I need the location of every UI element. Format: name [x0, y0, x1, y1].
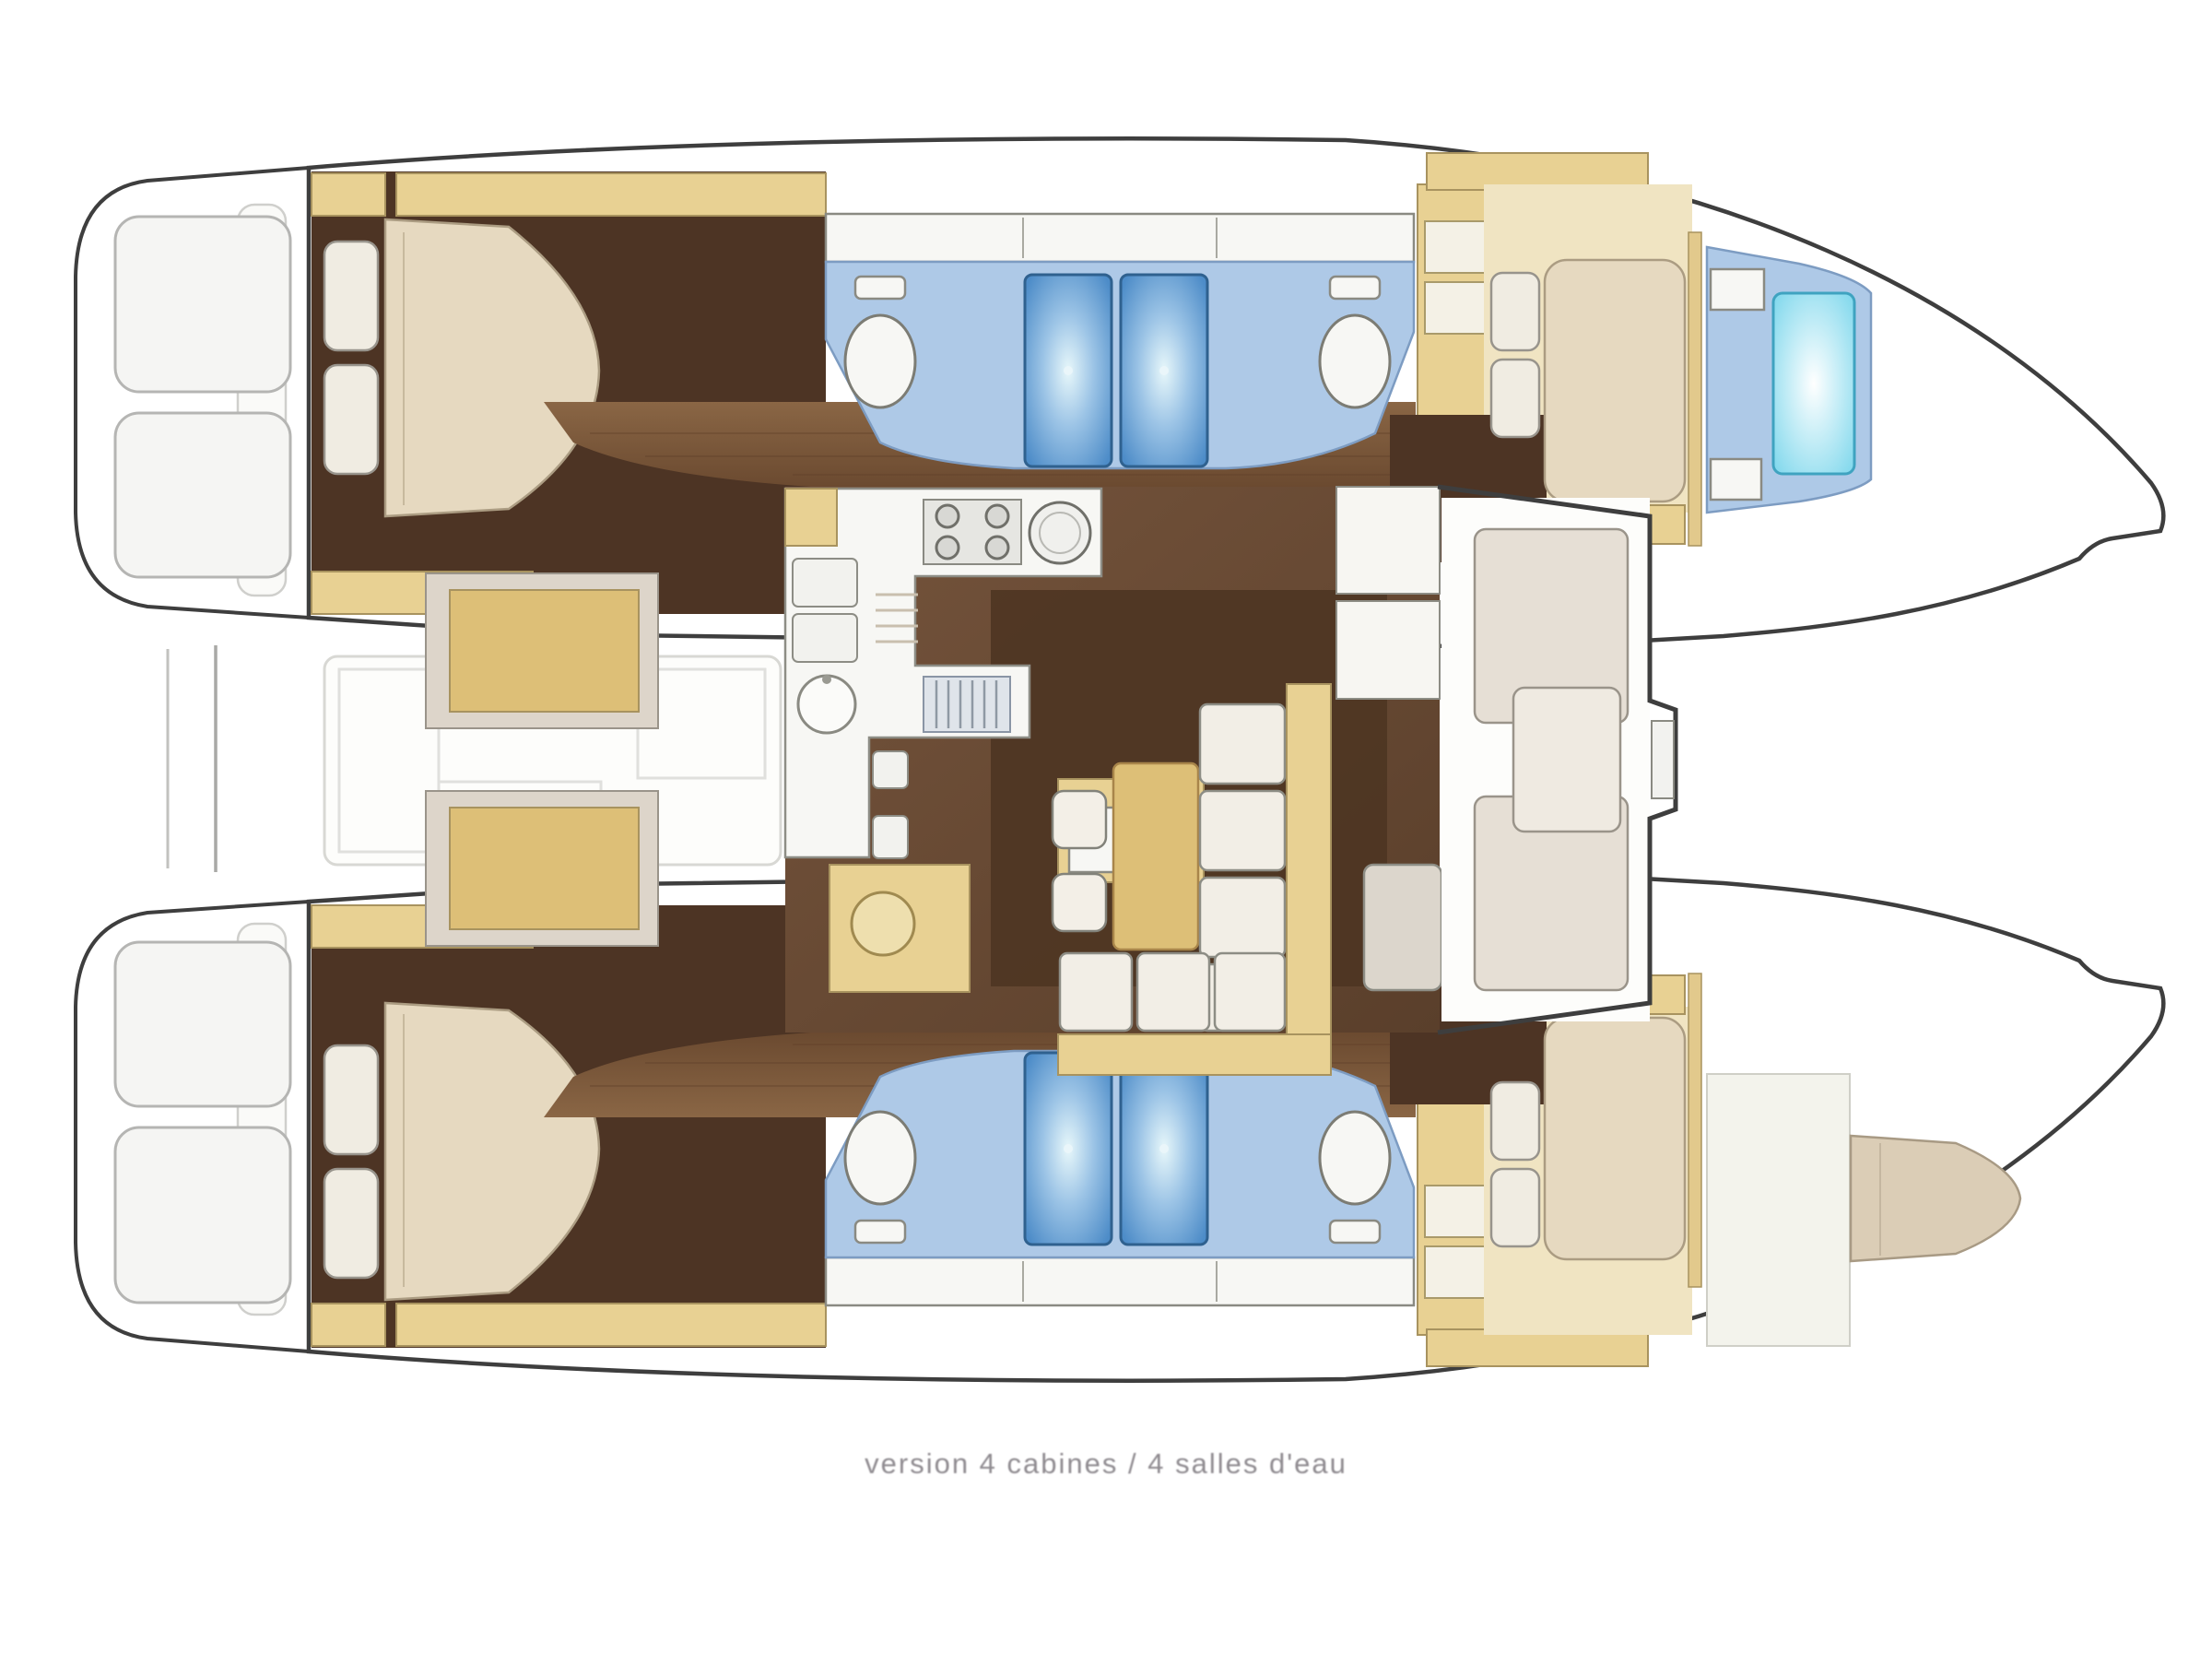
bow-berth-floor — [1707, 1074, 1850, 1346]
toilet — [1320, 277, 1390, 407]
galley-round-burner — [1030, 502, 1090, 563]
salon-cabinet — [1336, 487, 1440, 594]
sofa-backrest — [1058, 1034, 1331, 1075]
bow-bulkhead — [1688, 232, 1701, 546]
salon-chair — [1053, 874, 1106, 931]
forward-cabin-bed — [1545, 260, 1685, 502]
bed-pillow — [324, 365, 378, 474]
shower-drain — [1064, 366, 1073, 375]
bed-pillow — [1491, 360, 1539, 437]
aft-cabin-cabinet — [396, 173, 826, 216]
oven-dial — [852, 892, 914, 955]
bridgedeck — [785, 487, 1676, 1075]
sofa-backrest — [1287, 684, 1331, 1038]
bed-pillow — [1491, 273, 1539, 350]
foredeck-step — [1652, 721, 1674, 798]
galley-sink-round — [798, 676, 855, 733]
bow-sink — [1711, 269, 1764, 310]
nav-seat — [1364, 865, 1441, 990]
galley-drawer — [793, 559, 857, 607]
galley-stool — [873, 816, 908, 858]
galley-drawer — [793, 614, 857, 662]
bow-shower — [1773, 293, 1854, 474]
aft-cabin-cabinet — [312, 173, 385, 216]
bow-cabinet — [1711, 459, 1761, 500]
cockpit-bench — [1513, 688, 1620, 832]
bed-pillow — [324, 242, 378, 350]
salon-chair — [1053, 791, 1106, 848]
salon-table — [1113, 763, 1198, 950]
cabin-desk — [450, 590, 639, 712]
caption: version 4 cabines / 4 salles d'eau — [0, 1447, 2212, 1481]
bathroom-vanity — [826, 214, 1414, 262]
shower-drain — [1159, 366, 1169, 375]
galley-cabinet — [785, 489, 837, 546]
faucet — [822, 675, 831, 684]
galley-stool — [873, 751, 908, 788]
swim-step — [115, 217, 290, 392]
salon-cabinet — [1336, 601, 1440, 699]
toilet — [845, 277, 915, 407]
bow-head — [1707, 247, 1871, 513]
catamaran-floorplan: version 4 cabines / 4 salles d'eau — [0, 0, 2212, 1664]
swim-step — [115, 413, 290, 577]
floorplan-drawing — [0, 0, 2212, 1664]
